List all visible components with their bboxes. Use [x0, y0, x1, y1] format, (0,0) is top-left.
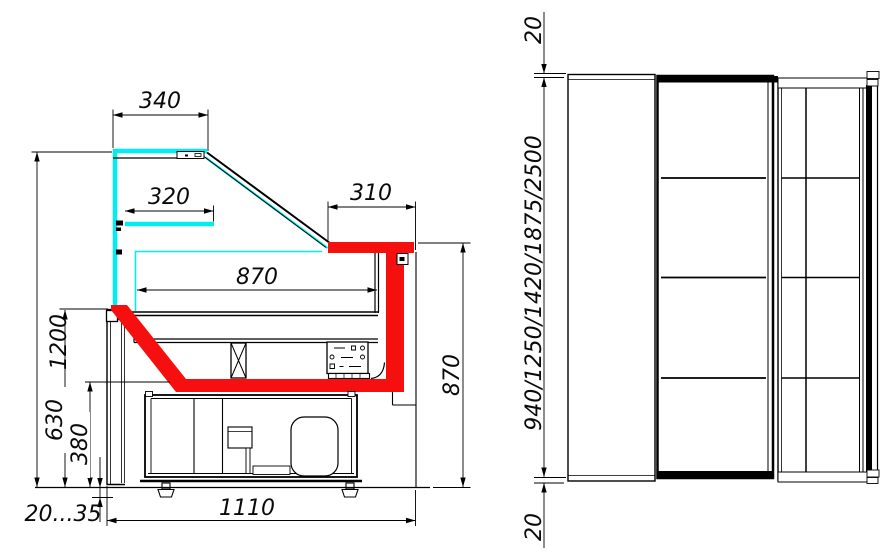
dim-length-options: 940/1250/1420/1875/2500	[522, 78, 547, 478]
dim-worktop-height: 870	[418, 243, 471, 488]
dim-text: 1200	[47, 314, 72, 370]
dim-text: 940/1250/1420/1875/2500	[522, 135, 547, 431]
display-liner-glass	[136, 252, 323, 312]
hinge-tab	[867, 72, 879, 79]
dim-bottom-offset: 20	[522, 478, 566, 549]
dim-text: 20	[522, 513, 547, 541]
door-right-inner	[860, 88, 864, 472]
front-slant-glass-outer	[207, 153, 331, 244]
dim-text: 320	[148, 185, 190, 210]
base-bolt	[348, 392, 355, 397]
dim-text: 20	[522, 16, 547, 44]
plate-base	[329, 374, 370, 379]
front-panel-outer	[107, 309, 125, 485]
dim-text: 870	[236, 265, 278, 290]
dim-lines	[113, 110, 208, 152]
hinge-tab	[867, 80, 878, 87]
relay-stand	[246, 448, 250, 474]
door-right-stile	[866, 85, 872, 472]
front-panel	[107, 309, 126, 485]
foot-pad	[158, 490, 174, 498]
deck-body	[134, 316, 378, 343]
deck-support-brace	[231, 343, 246, 378]
adjustable-feet	[158, 483, 358, 497]
machine-compartment	[140, 395, 362, 481]
hinge-tab	[867, 470, 879, 477]
base-bolt	[146, 392, 153, 397]
side-section-view: 340 320 310 870 1200	[25, 89, 471, 527]
control-plate	[327, 342, 370, 379]
front-view: 20 940/1250/1420/1875/2500 20	[522, 12, 879, 548]
dim-text: 1110	[219, 496, 275, 521]
dim-text: 340	[139, 89, 181, 114]
starter-relay-box	[228, 427, 252, 448]
dim-text: 380	[68, 423, 93, 465]
center-glass-door	[658, 76, 779, 478]
dim-display-depth: 870	[137, 265, 377, 293]
technical-drawing: 340 320 310 870 1200	[0, 0, 894, 559]
drip-tray	[253, 466, 290, 475]
door-top-band	[778, 78, 868, 88]
dim-arrows	[541, 483, 546, 493]
drawing-canvas: 340 320 310 870 1200	[0, 0, 894, 559]
dim-text: 630	[43, 399, 68, 441]
display-rear-wall	[375, 252, 379, 314]
back-glass-and-canopy	[113, 149, 214, 311]
glass-panels	[113, 149, 328, 311]
front-structure	[568, 72, 879, 484]
dim-text: 310	[350, 181, 392, 206]
door-top-bar	[658, 76, 779, 83]
lamp-icon	[195, 154, 201, 157]
front-panel-inner	[111, 309, 125, 485]
hinge-tab	[867, 478, 878, 484]
right-glass-door	[778, 72, 879, 484]
lamp-clip	[185, 155, 188, 157]
liner-corner-fillet	[371, 363, 385, 379]
compressor	[291, 417, 338, 476]
worktop-fastener-glyph	[400, 257, 405, 261]
dim-arrows	[541, 64, 546, 74]
door-bottom-band	[778, 472, 868, 482]
dim-text: 870	[440, 354, 465, 396]
front-view-dimensions: 20 940/1250/1420/1875/2500 20	[522, 12, 566, 548]
dim-base-depth: 1110	[107, 486, 416, 526]
dim-canopy-depth: 340	[113, 89, 208, 151]
foot-pad	[342, 490, 358, 498]
dim-shelf-depth: 320	[125, 185, 214, 222]
front-slant-glass-edge	[204, 157, 326, 248]
dim-top-offset: 20	[522, 12, 566, 78]
dim-worktop-depth: 310	[328, 181, 416, 250]
door-bottom-bar	[658, 471, 774, 478]
dim-text: 20...35	[25, 502, 102, 527]
deck-surface	[125, 312, 378, 316]
door-shelf-lines	[782, 178, 860, 378]
end-panel	[568, 75, 655, 482]
